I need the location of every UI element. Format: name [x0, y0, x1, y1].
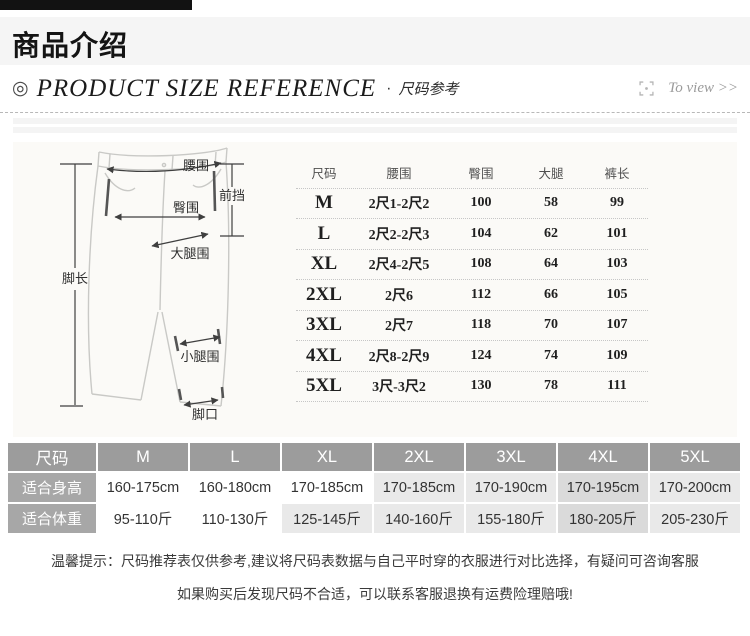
seam-marks [106, 171, 223, 400]
heading-separator-dot: · [386, 80, 391, 98]
hip-cell: 112 [446, 287, 516, 303]
fit-header-5xl: 5XL [650, 443, 740, 471]
length-cell: 101 [586, 226, 648, 242]
waist-cell: 3尺-3尺2 [352, 376, 446, 396]
hip-cell: 104 [446, 226, 516, 242]
length-cell: 107 [586, 317, 648, 333]
decor-strip-2 [13, 127, 737, 133]
hip-cell: 124 [446, 348, 516, 364]
hip-cell: 108 [446, 256, 516, 272]
fit-weight-label: 适合体重 [8, 504, 96, 533]
hip-cell: 100 [446, 195, 516, 211]
size-table-header-row: 尺码 腰围 臀围 大腿 裤长 [296, 158, 648, 189]
weight-cell: 95-110斤 [98, 504, 188, 533]
heading-title-cn: 尺码参考 [399, 78, 459, 99]
weight-cell: 140-160斤 [374, 504, 464, 533]
size-cell: 4XL [296, 345, 352, 367]
thigh-cell: 66 [516, 287, 586, 303]
label-calf: 小腿围 [180, 349, 219, 364]
section-title: 商品介绍 [12, 32, 128, 60]
fit-header-3xl: 3XL [466, 443, 556, 471]
length-cell: 103 [586, 256, 648, 272]
fit-header-2xl: 2XL [374, 443, 464, 471]
product-intro-section: 商品介绍 ◎ PRODUCT SIZE REFERENCE · 尺码参考 To … [0, 0, 750, 636]
fit-header-m: M [98, 443, 188, 471]
weight-cell: 110-130斤 [190, 504, 280, 533]
size-measure-table: 尺码 腰围 臀围 大腿 裤长 M 2尺1-2尺2 100 58 99 L 2尺2… [296, 158, 648, 402]
heading-right-group: To view >> [639, 80, 738, 97]
weight-cell: 180-205斤 [558, 504, 648, 533]
thigh-cell: 74 [516, 348, 586, 364]
waist-cell: 2尺7 [352, 315, 446, 335]
weight-cell: 155-180斤 [466, 504, 556, 533]
table-row: M 2尺1-2尺2 100 58 99 [296, 189, 648, 220]
size-cell: L [296, 223, 352, 245]
table-row: 2XL 2尺6 112 66 105 [296, 280, 648, 311]
col-header-hip: 臀围 [446, 163, 516, 182]
label-front-rise: 前挡 [219, 188, 245, 203]
size-reference-heading: ◎ PRODUCT SIZE REFERENCE · 尺码参考 To view … [0, 65, 750, 112]
height-cell: 170-190cm [466, 473, 556, 502]
size-notice: 温馨提示：尺码推荐表仅供参考,建议将尺码表数据与自己平时穿的衣服进行对比选择，有… [0, 551, 750, 604]
col-header-size: 尺码 [296, 163, 352, 182]
length-cell: 109 [586, 348, 648, 364]
pants-diagram: 腰围 前挡 臀围 大腿围 脚长 小腿围 脚口 [13, 142, 313, 437]
length-cell: 105 [586, 287, 648, 303]
hip-cell: 118 [446, 317, 516, 333]
size-cell: XL [296, 253, 352, 275]
label-waist: 腰围 [183, 158, 209, 173]
table-row: L 2尺2-2尺3 104 62 101 [296, 219, 648, 250]
label-leg-opening: 脚口 [192, 407, 218, 422]
notice-line-1: 温馨提示：尺码推荐表仅供参考,建议将尺码表数据与自己平时穿的衣服进行对比选择，有… [0, 551, 750, 571]
fit-header-xl: XL [282, 443, 372, 471]
label-hip: 臀围 [173, 200, 199, 215]
waist-cell: 2尺8-2尺9 [352, 346, 446, 366]
fit-header-4xl: 4XL [558, 443, 648, 471]
size-cell: 5XL [296, 375, 352, 397]
fit-header-size: 尺码 [8, 443, 96, 471]
viewfinder-icon [639, 81, 654, 96]
thigh-cell: 58 [516, 195, 586, 211]
col-header-thigh: 大腿 [516, 163, 586, 182]
weight-cell: 125-145斤 [282, 504, 372, 533]
size-cell: M [296, 192, 352, 214]
col-header-length: 裤长 [586, 163, 648, 182]
height-cell: 170-200cm [650, 473, 740, 502]
fit-height-label: 适合身高 [8, 473, 96, 502]
weight-cell: 205-230斤 [650, 504, 740, 533]
notice-line-2: 如果购买后发现尺码不合适，可以联系客服退换有运费险理赔哦! [0, 584, 750, 604]
table-row: 5XL 3尺-3尺2 130 78 111 [296, 372, 648, 403]
thigh-cell: 62 [516, 226, 586, 242]
waist-cell: 2尺1-2尺2 [352, 193, 446, 213]
waist-cell: 2尺2-2尺3 [352, 224, 446, 244]
waist-cell: 2尺4-2尺5 [352, 254, 446, 274]
dashed-divider [0, 112, 750, 113]
thigh-cell: 64 [516, 256, 586, 272]
intro-title-band: 商品介绍 [0, 17, 750, 65]
top-divider-bar [0, 0, 192, 10]
decor-strip-1 [13, 118, 737, 124]
size-cell: 2XL [296, 284, 352, 306]
height-cell: 160-180cm [190, 473, 280, 502]
length-cell: 99 [586, 195, 648, 211]
to-view-link[interactable]: To view >> [668, 80, 738, 97]
table-row: 4XL 2尺8-2尺9 124 74 109 [296, 341, 648, 372]
length-cell: 111 [586, 378, 648, 394]
fit-recommendation-table: 尺码 M L XL 2XL 3XL 4XL 5XL 适合身高 160-175cm… [8, 443, 742, 533]
bullseye-icon: ◎ [12, 77, 29, 100]
size-chart-area: 腰围 前挡 臀围 大腿围 脚长 小腿围 脚口 尺码 腰围 臀围 大腿 裤长 M … [13, 142, 737, 437]
col-header-waist: 腰围 [352, 163, 446, 182]
label-leg-length: 脚长 [62, 271, 88, 286]
height-cell: 170-185cm [282, 473, 372, 502]
height-cell: 170-185cm [374, 473, 464, 502]
thigh-cell: 78 [516, 378, 586, 394]
fit-header-l: L [190, 443, 280, 471]
size-cell: 3XL [296, 314, 352, 336]
thigh-cell: 70 [516, 317, 586, 333]
waist-cell: 2尺6 [352, 285, 446, 305]
height-cell: 160-175cm [98, 473, 188, 502]
hip-cell: 130 [446, 378, 516, 394]
table-row: XL 2尺4-2尺5 108 64 103 [296, 250, 648, 281]
heading-title-en: PRODUCT SIZE REFERENCE [37, 75, 377, 103]
label-thigh: 大腿围 [170, 246, 209, 261]
height-cell: 170-195cm [558, 473, 648, 502]
table-row: 3XL 2尺7 118 70 107 [296, 311, 648, 342]
